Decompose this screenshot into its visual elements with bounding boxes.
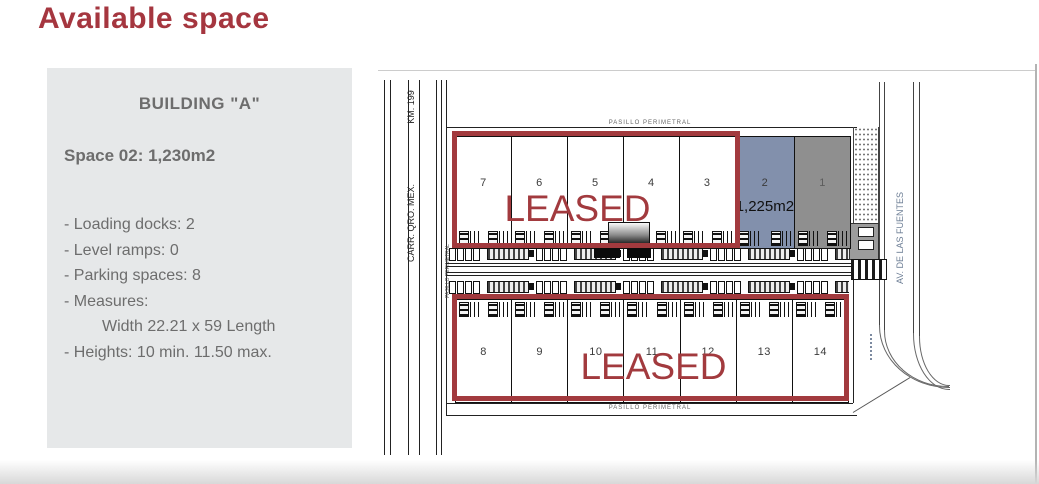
- guard-house: [849, 223, 879, 260]
- dock-leveler-icon: [739, 231, 759, 246]
- plan-top-border: [378, 70, 1035, 71]
- unit-cell-1: 1: [795, 137, 851, 248]
- right-road-line: [919, 82, 920, 336]
- dock-leveler-icon: [827, 231, 847, 246]
- aisle-line: [446, 266, 887, 267]
- dock-equipment: [736, 230, 794, 248]
- truck-trailer-icon: [835, 248, 849, 260]
- pasillo-bottom-label: PASILLO PERIMETRAL: [555, 405, 745, 411]
- leased-label-bottom: LEASED: [455, 346, 852, 388]
- left-road-line: [390, 80, 391, 455]
- road-label-avenue: AV. DE LAS FUENTES: [895, 183, 907, 293]
- dock-door-cluster: [710, 281, 741, 294]
- entrance-crossing-stripes: [851, 259, 887, 280]
- detail-line: - Parking spaces: 8: [64, 263, 352, 289]
- building-top-line: [446, 127, 857, 128]
- truck-dock-strip: [449, 279, 849, 295]
- site-corner-diagonal: [853, 377, 911, 413]
- left-road-line: [441, 80, 442, 455]
- guard-house-window: [858, 240, 874, 250]
- slide-bottom-shadow: [0, 460, 1039, 484]
- truck-trailer-icon: [487, 248, 529, 260]
- detail-line: - Loading docks: 2: [64, 212, 352, 238]
- illegible-side-label: [870, 334, 872, 360]
- dock-door-cluster: [623, 281, 654, 294]
- dock-door-cluster: [797, 281, 828, 294]
- truck-trailer-icon: [835, 281, 849, 293]
- space-details-list: - Loading docks: 2- Level ramps: 0- Park…: [64, 212, 352, 365]
- landscape-strip: [853, 127, 879, 223]
- building-bottom-line: [446, 403, 853, 404]
- left-road-line: [384, 80, 385, 455]
- unit-cell-2: 21,225m2: [736, 137, 795, 248]
- leased-label-top: LEASED: [430, 188, 725, 230]
- detail-line: Width 22.21 x 59 Length: [64, 314, 352, 340]
- unit-number: 1: [819, 177, 826, 189]
- info-panel: BUILDING "A" Space 02: 1,230m2 - Loading…: [47, 68, 352, 448]
- truck-trailer-icon: [661, 248, 703, 260]
- aisle-line: [446, 263, 887, 264]
- unit-number: 2: [762, 177, 769, 189]
- detail-line: - Measures:: [64, 289, 352, 315]
- slide: Available space BUILDING "A" Space 02: 1…: [0, 0, 1039, 484]
- dock-door-cluster: [797, 248, 828, 261]
- site-bottom-line: [446, 415, 857, 416]
- aisle-line: [446, 275, 887, 276]
- right-road-line: [913, 82, 914, 333]
- detail-line: - Level ramps: 0: [64, 238, 352, 264]
- aisle-line: [446, 272, 887, 273]
- left-road-line: [436, 80, 437, 455]
- road-label-km: KM. 199: [406, 77, 418, 137]
- truck-trailer-icon: [748, 281, 790, 293]
- road-label-carr: CARR. QRO. MEX.: [406, 168, 418, 278]
- truck-trailer-icon: [748, 248, 790, 260]
- dock-door-cluster: [536, 248, 567, 261]
- right-road-line: [884, 82, 885, 330]
- truck-trailer-icon: [661, 281, 703, 293]
- right-road-line: [879, 82, 880, 325]
- left-road-line: [419, 80, 420, 455]
- detail-line: - Heights: 10 min. 11.50 max.: [64, 340, 352, 366]
- dock-door-cluster: [449, 248, 480, 261]
- dock-door-cluster: [536, 281, 567, 294]
- pasillo-top-label: PASILLO PERIMETRAL: [555, 120, 745, 126]
- building-heading: BUILDING "A": [47, 94, 352, 114]
- page-title: Available space: [38, 2, 270, 36]
- space-size-label: Space 02: 1,230m2: [64, 146, 352, 166]
- slide-right-edge: [1035, 64, 1037, 484]
- available-area-label: 1,225m2: [736, 198, 794, 215]
- truck-trailer-icon: [487, 281, 529, 293]
- dock-door-cluster: [710, 248, 741, 261]
- dock-equipment: [795, 230, 850, 248]
- dock-door-cluster: [449, 281, 480, 294]
- guard-house-window: [858, 227, 874, 237]
- truck-trailer-icon: [574, 281, 616, 293]
- dock-leveler-icon: [771, 231, 791, 246]
- dock-leveler-icon: [798, 231, 818, 246]
